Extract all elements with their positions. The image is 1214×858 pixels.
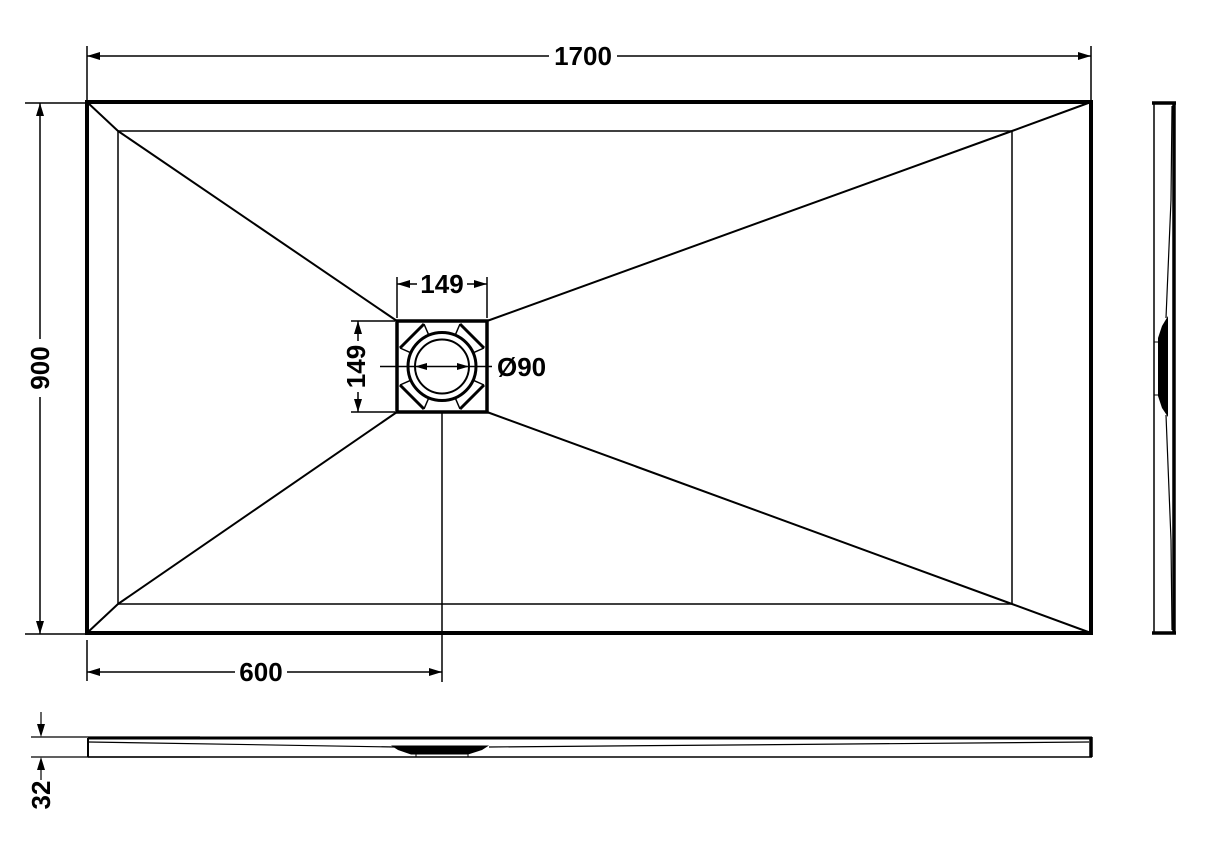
front-view <box>88 737 1092 757</box>
arrow-down-icon <box>36 621 44 634</box>
plan-view <box>87 102 1091 682</box>
dim-32-label: 32 <box>26 781 56 810</box>
dim-149-left-label: 149 <box>341 345 371 388</box>
arrow-right-icon <box>429 668 442 676</box>
side-slope-upper <box>1166 106 1172 318</box>
front-profile-outline <box>88 737 1092 757</box>
dim-600-label: 600 <box>239 657 282 687</box>
arrow-right-icon <box>1078 52 1091 60</box>
side-slope-lower <box>1166 415 1172 630</box>
side-drain-body <box>1158 316 1168 417</box>
dim-drain-offset-600: 600 <box>87 640 442 687</box>
dim-900-label: 900 <box>25 346 55 389</box>
arrow-left-icon <box>87 668 100 676</box>
dim-length-1700: 1700 <box>87 41 1091 100</box>
dim-32-lines <box>31 712 200 780</box>
arrow-up-icon <box>37 757 45 770</box>
arrow-down-icon <box>37 724 45 737</box>
dim-149-top-label: 149 <box>420 269 463 299</box>
arrow-left-icon <box>87 52 100 60</box>
arrow-up-icon <box>36 103 44 116</box>
dim-1700-label: 1700 <box>554 41 612 71</box>
tray-outer-rect <box>87 102 1091 633</box>
dim-width-900: 900 <box>25 103 86 634</box>
drain-diameter-label: Ø90 <box>497 352 546 382</box>
side-view <box>1152 102 1176 633</box>
front-drain-body <box>391 746 489 755</box>
front-slope-right <box>489 742 1089 747</box>
front-slope-left <box>89 742 395 747</box>
dim-thickness-32: 32 <box>26 712 200 809</box>
technical-drawing: 1700 900 600 149 <box>0 0 1214 858</box>
